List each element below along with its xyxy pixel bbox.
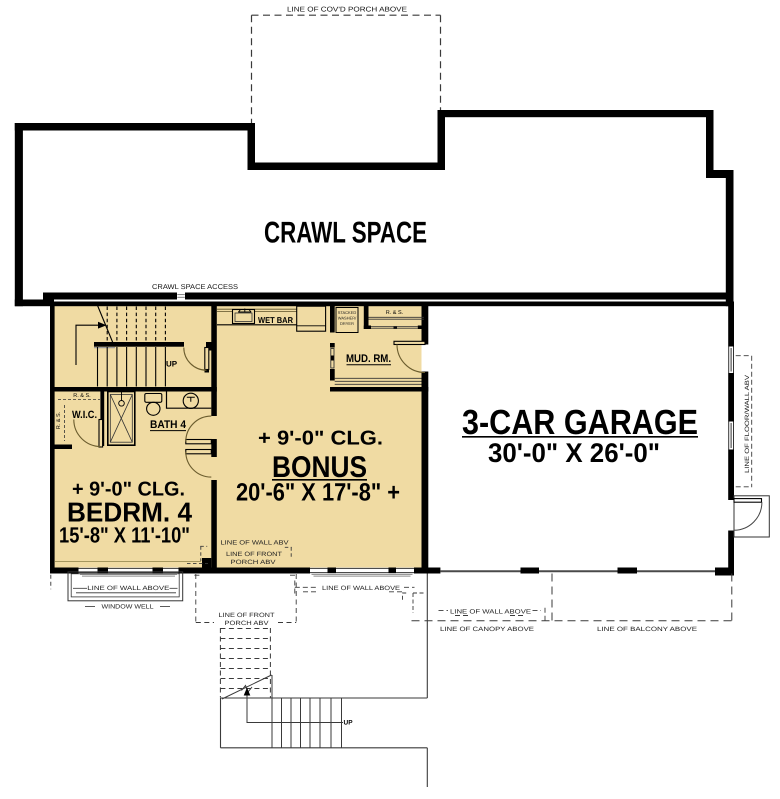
svg-text:CRAWL SPACE ACCESS: CRAWL SPACE ACCESS — [152, 284, 238, 291]
svg-text:PORCH ABV: PORCH ABV — [231, 559, 277, 566]
svg-text:LINE OF FRONT: LINE OF FRONT — [219, 612, 275, 619]
svg-text:R. & S.: R. & S. — [56, 411, 62, 429]
svg-text:WASHER/: WASHER/ — [338, 316, 357, 321]
svg-text:15'-8" X 11'-10": 15'-8" X 11'-10" — [59, 523, 190, 548]
svg-text:BATH 4: BATH 4 — [150, 419, 187, 431]
svg-text:WINDOW WELL: WINDOW WELL — [102, 604, 155, 611]
svg-text:PORCH ABV: PORCH ABV — [225, 620, 270, 627]
svg-text:LINE OF WALL ABV: LINE OF WALL ABV — [221, 540, 290, 547]
svg-text:CRAWL SPACE: CRAWL SPACE — [264, 217, 427, 250]
svg-text:UP: UP — [166, 360, 178, 369]
svg-text:R. & S.: R. & S. — [386, 310, 404, 316]
svg-text:LINE OF FRONT: LINE OF FRONT — [226, 551, 282, 558]
svg-text:R. & S.: R. & S. — [73, 393, 91, 399]
svg-text:LINE OF COV'D PORCH ABOVE: LINE OF COV'D PORCH ABOVE — [287, 7, 407, 14]
svg-text:MUD. RM.: MUD. RM. — [346, 353, 391, 365]
svg-text:DRYER: DRYER — [340, 321, 354, 326]
svg-text:30'-0" X 26'-0": 30'-0" X 26'-0" — [488, 438, 660, 468]
svg-text:LINE OF FLOOR/WALL ABV: LINE OF FLOOR/WALL ABV — [744, 374, 751, 473]
svg-text:LINE OF BALCONY ABOVE: LINE OF BALCONY ABOVE — [597, 626, 697, 633]
svg-text:W.I.C.: W.I.C. — [72, 409, 97, 421]
svg-text:LINE OF WALL ABOVE: LINE OF WALL ABOVE — [450, 608, 531, 615]
svg-text:20'-6" X 17'-8" +: 20'-6" X 17'-8" + — [236, 479, 400, 507]
svg-text:UP: UP — [344, 720, 354, 727]
svg-text:WET BAR: WET BAR — [258, 315, 293, 325]
svg-text:STACKED: STACKED — [338, 310, 357, 315]
svg-text:LINE OF WALL ABOVE: LINE OF WALL ABOVE — [87, 585, 169, 592]
svg-text:LINE OF CANOPY ABOVE: LINE OF CANOPY ABOVE — [440, 626, 534, 633]
svg-text:LINE OF WALL ABOVE: LINE OF WALL ABOVE — [322, 585, 400, 592]
svg-text:+ 9'-0" CLG.: + 9'-0" CLG. — [258, 428, 383, 450]
